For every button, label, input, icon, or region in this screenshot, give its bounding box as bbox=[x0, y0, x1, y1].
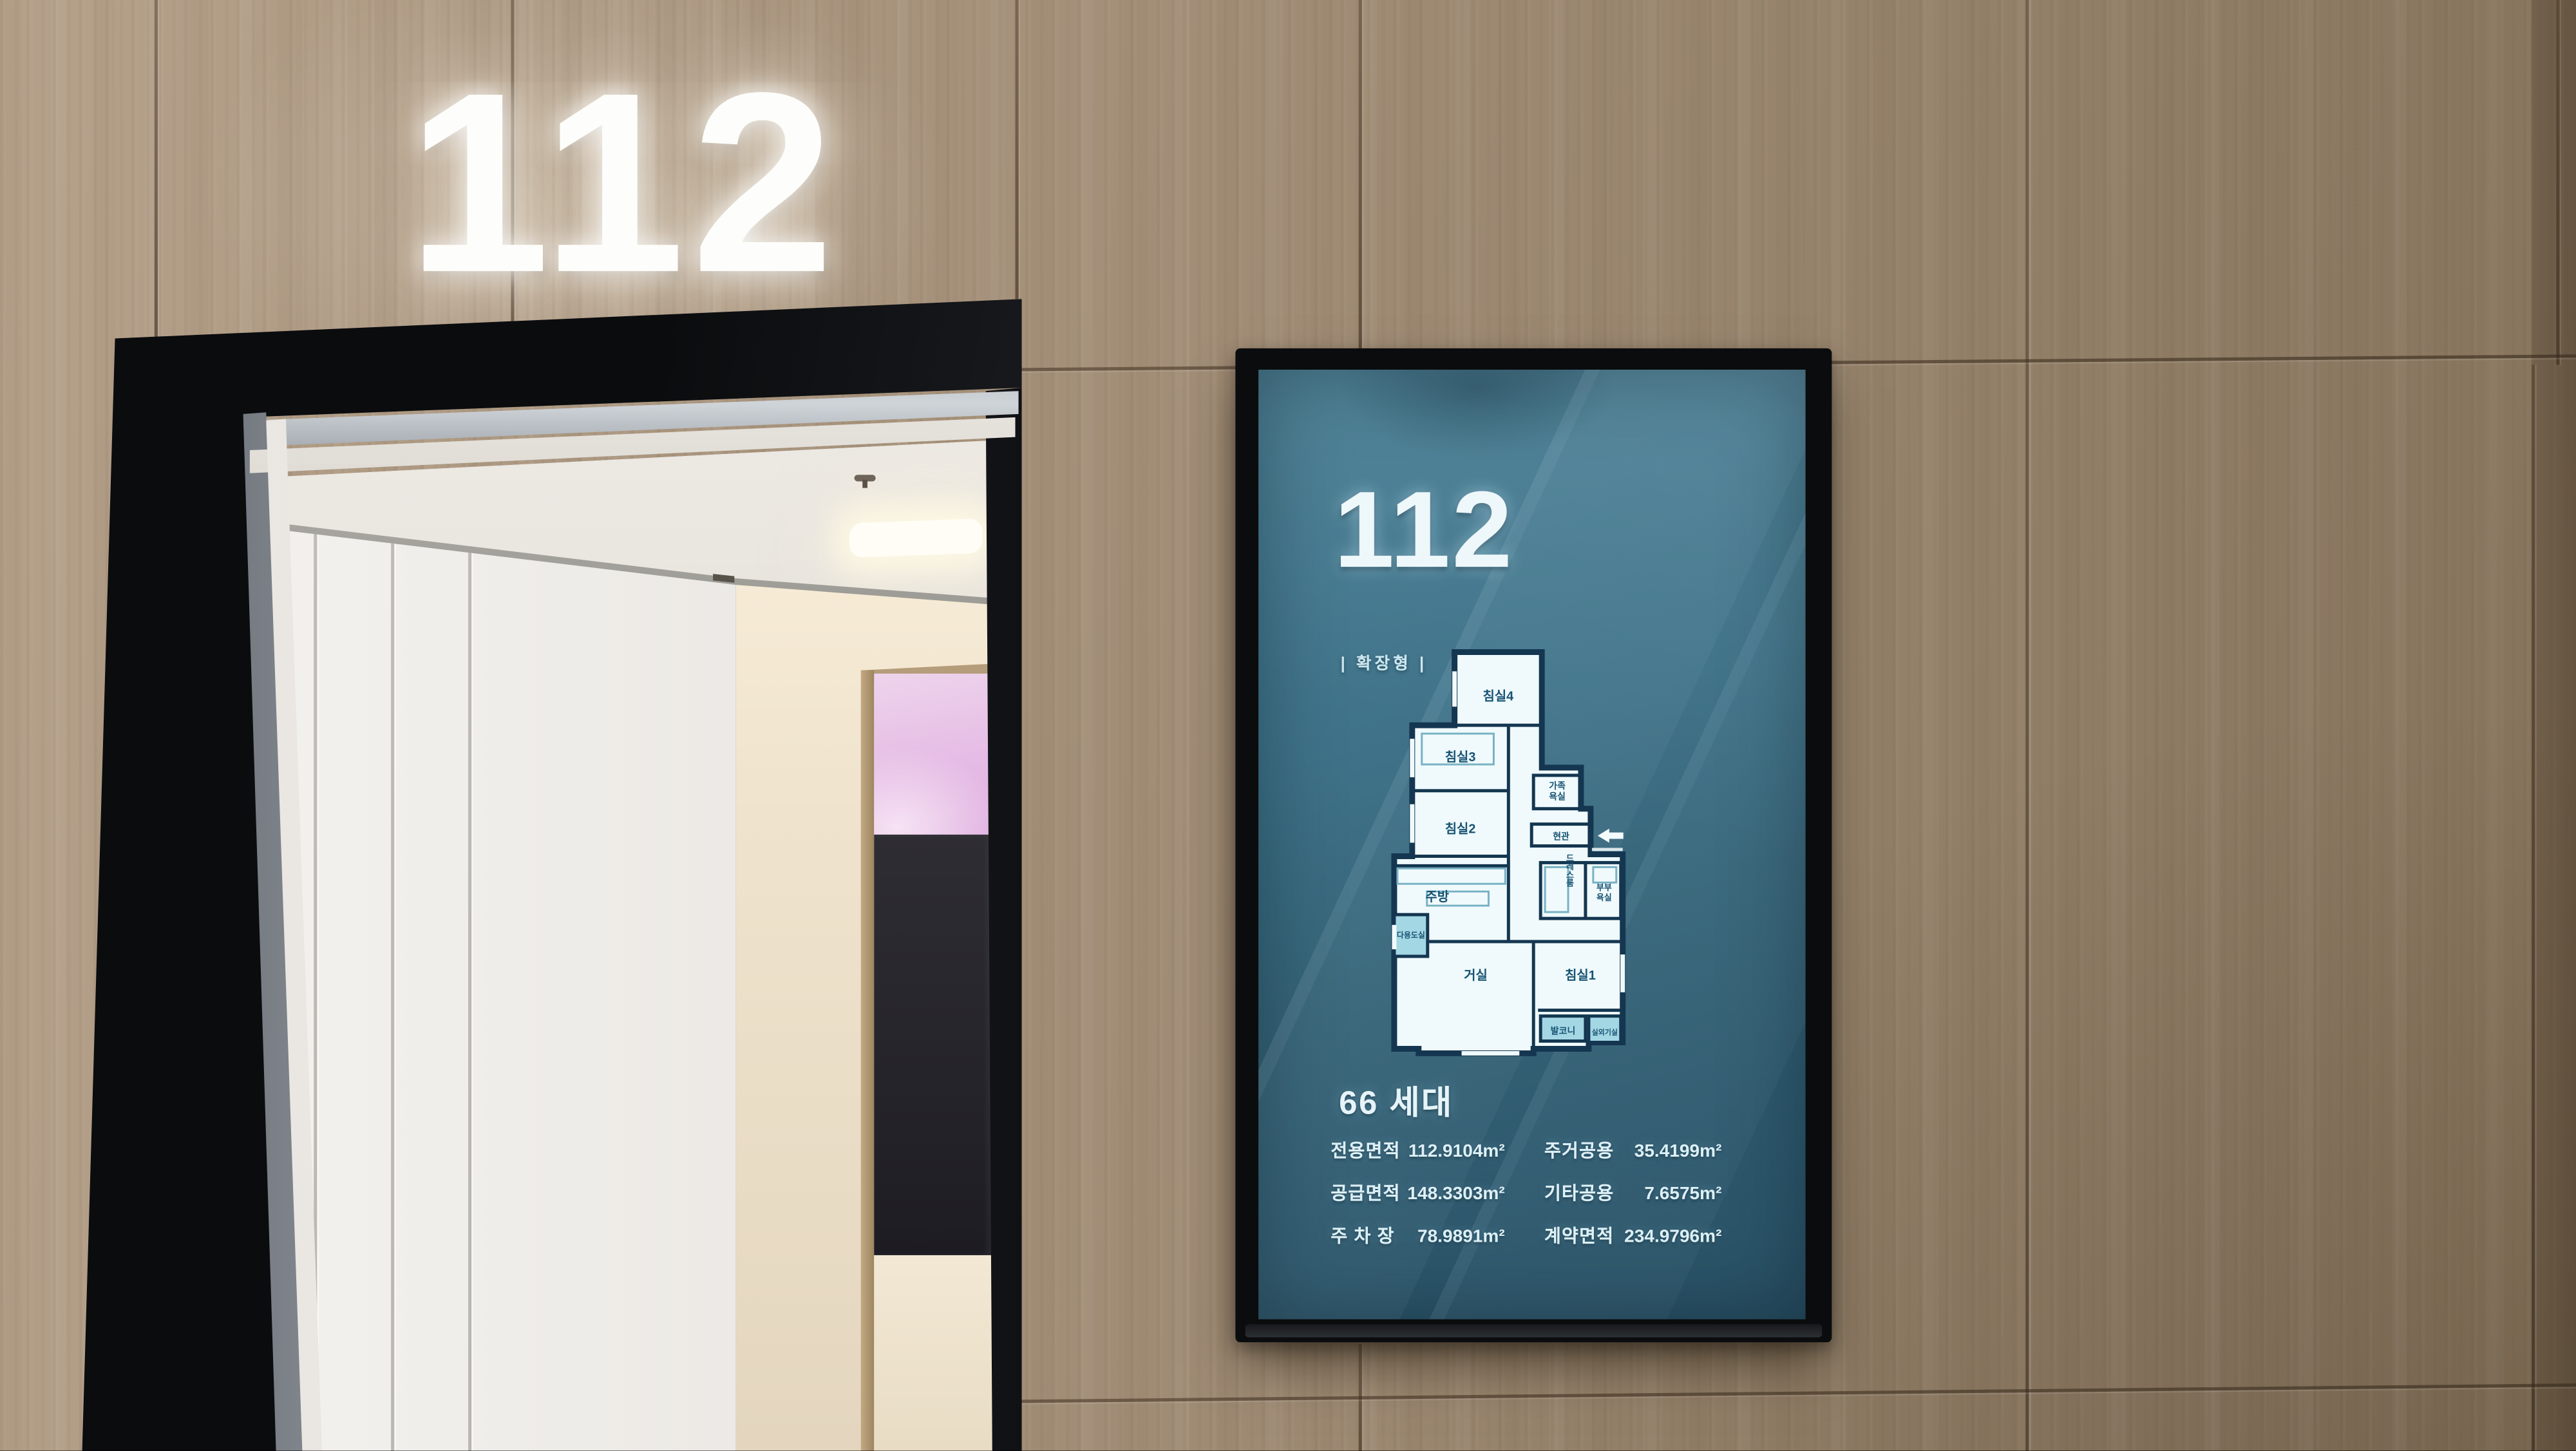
stat-row: 기타공용 7.6575m² bbox=[1544, 1180, 1722, 1222]
doorway bbox=[82, 296, 1022, 1450]
room-label-kitchen: 주방 bbox=[1425, 889, 1449, 904]
stat-row: 계약면적 234.9796m² bbox=[1544, 1222, 1722, 1265]
stat-label: 전용면적 bbox=[1331, 1137, 1400, 1163]
wall-seam-vertical bbox=[1359, 0, 1362, 348]
room-label-utility: 다용도실 bbox=[1397, 930, 1425, 940]
stat-value: 234.9796m² bbox=[1624, 1228, 1721, 1247]
room-label-living: 거실 bbox=[1464, 968, 1488, 983]
entrance-step bbox=[1592, 848, 1623, 851]
panel-seam bbox=[391, 384, 394, 1451]
stat-row: 공급면적 148.3303m² bbox=[1331, 1180, 1504, 1222]
stat-label: 주거공용 bbox=[1544, 1137, 1614, 1163]
stat-row: 주 차 장 78.9891m² bbox=[1331, 1222, 1504, 1265]
wall-right-dark-panel bbox=[2532, 0, 2576, 1451]
sprinkler-head bbox=[855, 475, 876, 481]
area-stats-left-column: 전용면적 112.9104m² 공급면적 148.3303m² 주 차 장 78… bbox=[1331, 1137, 1504, 1265]
inner-dark-panel bbox=[874, 835, 992, 1255]
room-label-ac-unit-room: 실외기실 bbox=[1592, 1028, 1618, 1037]
room-label-master-bath: 욕실 bbox=[1596, 893, 1612, 902]
room-label-bed1: 침실1 bbox=[1565, 968, 1596, 983]
stat-value: 112.9104m² bbox=[1408, 1142, 1505, 1162]
room-label-family-bath: 욕실 bbox=[1549, 792, 1566, 802]
room-label-master-bath: 부부 bbox=[1596, 882, 1612, 892]
entrance-arrow-icon bbox=[1598, 829, 1624, 843]
room-label-family-bath: 가족 bbox=[1549, 781, 1566, 791]
wall-seam-vertical bbox=[2025, 0, 2029, 1451]
room-number-sign: 112 bbox=[408, 56, 841, 312]
stat-label: 주 차 장 bbox=[1331, 1222, 1394, 1249]
hallway-photo: 112 bbox=[0, 0, 2576, 1451]
stat-row: 전용면적 112.9104m² bbox=[1331, 1137, 1504, 1179]
stat-value: 7.6575m² bbox=[1644, 1184, 1721, 1204]
digital-signage-display: 112 | 확장형 | bbox=[1235, 348, 1832, 1342]
wall-seam-vertical bbox=[1016, 0, 1019, 299]
ceiling-light-fixture bbox=[849, 518, 983, 558]
display-screen[interactable]: 112 | 확장형 | bbox=[1258, 370, 1805, 1319]
display-frame-chin bbox=[1245, 1324, 1822, 1337]
wall-seam-vertical bbox=[155, 0, 158, 342]
room-label-balcony: 발코니 bbox=[1551, 1026, 1575, 1036]
stat-row: 주거공용 35.4199m² bbox=[1544, 1137, 1722, 1179]
wall-seam-vertical bbox=[2556, 0, 2559, 365]
inner-floor-strip bbox=[874, 1255, 992, 1451]
inner-doorway-trim-left bbox=[861, 670, 874, 1451]
stat-value: 78.9891m² bbox=[1417, 1228, 1505, 1247]
stat-value: 35.4199m² bbox=[1634, 1142, 1722, 1162]
room-label-bed4: 침실4 bbox=[1483, 688, 1514, 703]
stat-label: 계약면적 bbox=[1544, 1222, 1614, 1249]
area-stats-right-column: 주거공용 35.4199m² 기타공용 7.6575m² 계약면적 234.97… bbox=[1544, 1137, 1722, 1265]
room-label-entrance: 현관 bbox=[1553, 831, 1569, 842]
wall-seam-vertical bbox=[2532, 365, 2535, 1450]
floorplan: 침실4 침실3 침실2 가족 욕실 현관 주방 다용도실 거실 드레스룸 부부 … bbox=[1387, 646, 1630, 1060]
room-label-dressroom: 드레스룸 bbox=[1565, 853, 1575, 887]
inner-doorway-pink-glow bbox=[874, 674, 992, 835]
room-label-bed2: 침실2 bbox=[1445, 822, 1476, 837]
stat-label: 공급면적 bbox=[1331, 1180, 1400, 1206]
room-label-bed3: 침실3 bbox=[1445, 750, 1476, 764]
stat-label: 기타공용 bbox=[1544, 1180, 1614, 1206]
stat-value: 148.3303m² bbox=[1407, 1184, 1504, 1204]
household-count: 66 세대 bbox=[1339, 1076, 1454, 1124]
unit-number-title: 112 bbox=[1334, 475, 1513, 583]
area-stats-table: 전용면적 112.9104m² 공급면적 148.3303m² 주 차 장 78… bbox=[1331, 1137, 1728, 1265]
